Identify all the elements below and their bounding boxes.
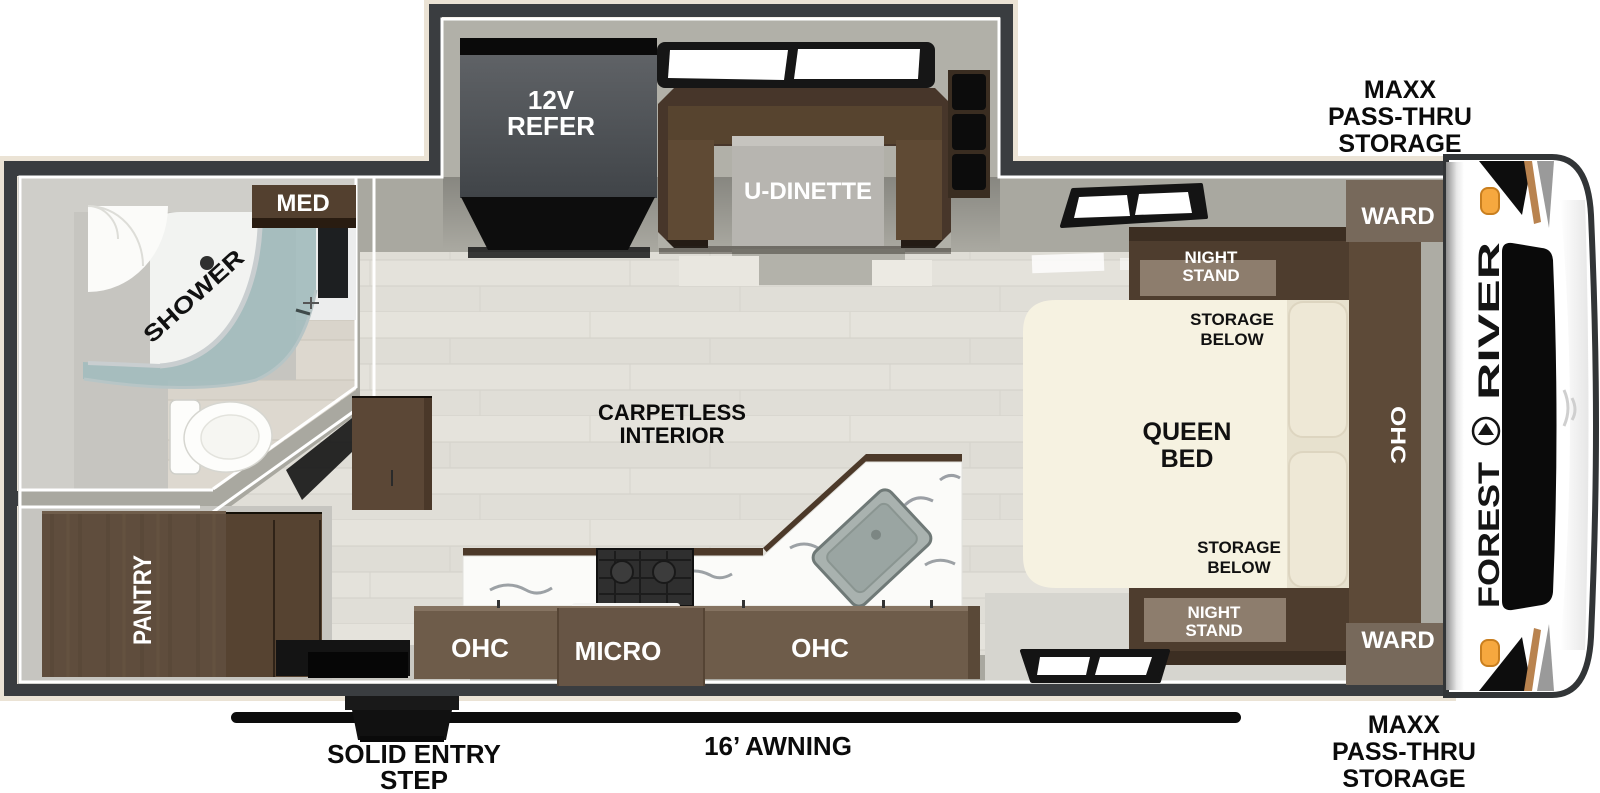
svg-text:FOREST: FOREST — [1473, 462, 1506, 608]
svg-text:MED: MED — [276, 190, 329, 217]
svg-text:CARPETLESS: CARPETLESS — [598, 400, 746, 425]
svg-text:BED: BED — [1161, 445, 1214, 473]
svg-text:OHC: OHC — [791, 633, 849, 663]
svg-text:STORAGE: STORAGE — [1342, 765, 1465, 793]
svg-text:NIGHT: NIGHT — [1185, 248, 1239, 267]
svg-text:NIGHT: NIGHT — [1188, 603, 1242, 622]
svg-text:OHC: OHC — [1386, 406, 1409, 464]
svg-text:PASS-THRU: PASS-THRU — [1332, 738, 1476, 766]
svg-text:STORAGE: STORAGE — [1190, 310, 1274, 329]
svg-text:STORAGE: STORAGE — [1197, 538, 1281, 557]
svg-text:BELOW: BELOW — [1200, 330, 1264, 349]
svg-text:STAND: STAND — [1182, 266, 1239, 285]
svg-text:WARD: WARD — [1361, 627, 1434, 654]
svg-text:QUEEN: QUEEN — [1143, 418, 1232, 446]
svg-text:OHC: OHC — [451, 633, 509, 663]
svg-text:REFER: REFER — [507, 111, 595, 141]
svg-text:INTERIOR: INTERIOR — [619, 423, 724, 448]
svg-text:MAXX: MAXX — [1364, 76, 1437, 104]
svg-text:U-DINETTE: U-DINETTE — [744, 178, 872, 205]
svg-text:STEP: STEP — [380, 765, 448, 793]
svg-text:BELOW: BELOW — [1207, 558, 1271, 577]
svg-text:STORAGE: STORAGE — [1338, 130, 1461, 158]
svg-text:16’ AWNING: 16’ AWNING — [704, 731, 852, 761]
svg-text:STAND: STAND — [1185, 621, 1242, 640]
svg-text:MICRO: MICRO — [575, 636, 662, 666]
svg-text:PASS-THRU: PASS-THRU — [1328, 103, 1472, 131]
svg-text:PANTRY: PANTRY — [129, 555, 157, 645]
svg-text:MAXX: MAXX — [1368, 711, 1441, 739]
svg-text:RIVER: RIVER — [1473, 241, 1506, 400]
svg-text:WARD: WARD — [1361, 203, 1434, 230]
